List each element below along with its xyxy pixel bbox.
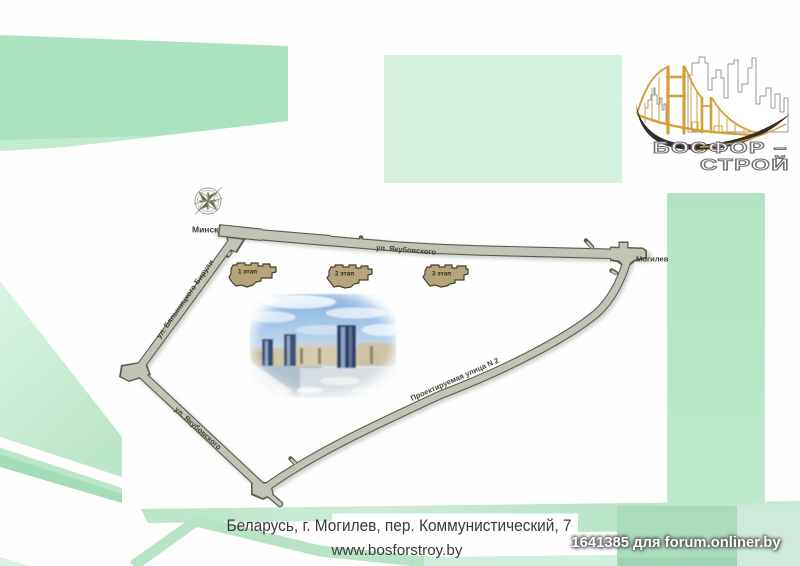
svg-text:1 этап: 1 этап (238, 269, 257, 276)
svg-text:СТРОЙ: СТРОЙ (700, 156, 790, 174)
svg-text:БОСФОР –: БОСФОР – (653, 140, 788, 157)
svg-text:2 этап: 2 этап (335, 271, 354, 278)
svg-text:3 этап: 3 этап (432, 271, 451, 278)
svg-text:www.bosforstroy.by: www.bosforstroy.by (330, 542, 462, 559)
svg-text:Минск: Минск (192, 225, 219, 235)
svg-text:Могилев: Могилев (636, 255, 669, 264)
svg-text:ул. Якубовского: ул. Якубовского (173, 405, 224, 452)
svg-text:ул. Бялыницкого-Бирули: ул. Бялыницкого-Бирули (154, 258, 215, 340)
svg-text:Беларусь, г. Могилев, пер. Ком: Беларусь, г. Могилев, пер. Коммунистичес… (227, 517, 572, 535)
